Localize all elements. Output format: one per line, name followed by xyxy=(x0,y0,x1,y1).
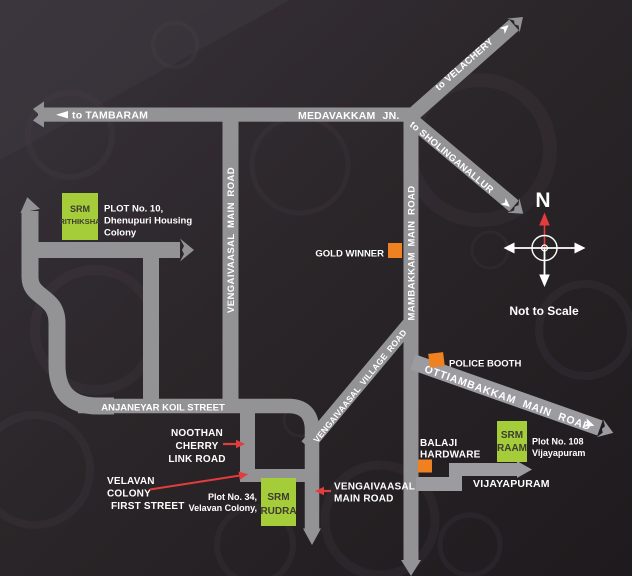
rudra-plot-line2: Velavan Colony, xyxy=(189,503,257,513)
label-anjaneyar-koil: ANJANEYAR KOIL STREET xyxy=(101,403,225,414)
label-vijayapuram: VIJAYAPURAM xyxy=(473,478,550,490)
rithiksha-plot-line3: Colony xyxy=(104,228,137,239)
scale-note: Not to Scale xyxy=(509,304,579,318)
map-canvas: to TAMBARAM MEDAVAKKAM JN. to VELACHERY … xyxy=(0,0,632,576)
velavan-line1: VELAVAN xyxy=(107,476,155,487)
rudra-plot-line1: Plot No. 34, xyxy=(208,492,257,502)
balaji-label-line2: HARDWARE xyxy=(420,450,481,461)
balaji-label-line1: BALAJI xyxy=(420,438,457,449)
police-booth-label: POLICE BOOTH xyxy=(449,359,521,370)
compass-north-label: N xyxy=(535,189,550,212)
raam-plot-line2: Vijayapuram xyxy=(532,448,585,458)
srm-raam-name: RAAM xyxy=(497,443,527,454)
svg-text:VENGAIVAASAL MAIN ROAD: VENGAIVAASAL MAIN ROAD xyxy=(226,167,237,313)
label-mambakkam-main: MAMBAKKAM MAIN ROAD xyxy=(407,185,418,320)
label-medavakkam-jn: MEDAVAKKAM JN. xyxy=(298,110,400,122)
balaji-square-icon xyxy=(418,460,432,473)
label-to-tambaram: to TAMBARAM xyxy=(72,110,148,122)
srm-rithiksha-brand: SRM xyxy=(70,204,90,214)
srm-rudra-brand: SRM xyxy=(267,492,289,503)
srm-rudra-name: RUDRA xyxy=(260,506,296,517)
road-vijayapuram-upper xyxy=(449,463,518,476)
vengaivaasal-south-line1: VENGAIVAASAL xyxy=(334,482,415,493)
vengaivaasal-south-line2: MAIN ROAD xyxy=(334,494,394,505)
location-map: to TAMBARAM MEDAVAKKAM JN. to VELACHERY … xyxy=(0,0,632,576)
velavan-line3: FIRST STREET xyxy=(111,501,185,512)
srm-raam-box xyxy=(497,421,527,462)
gold-winner-label: GOLD WINNER xyxy=(315,249,384,260)
police-booth-square-icon xyxy=(428,352,445,368)
noothan-line1: NOOTHAN xyxy=(171,428,223,439)
label-vengaivaasal-main: VENGAIVAASAL MAIN ROAD xyxy=(226,167,237,313)
srm-rithiksha-name: RITHIKSHA xyxy=(59,217,101,226)
rithiksha-plot-line2: Dhenupuri Housing xyxy=(104,216,192,227)
road-colony-connector xyxy=(143,250,159,410)
noothan-line2: CHERRY xyxy=(175,441,218,452)
road-noothan-cherry-link xyxy=(240,399,255,472)
velavan-line2: COLONY xyxy=(107,489,151,500)
gold-winner-square-icon xyxy=(388,243,402,258)
noothan-line3: LINK ROAD xyxy=(168,454,225,465)
rithiksha-plot-line1: PLOT No. 10, xyxy=(104,204,163,215)
raam-plot-line1: Plot No. 108 xyxy=(532,437,584,447)
svg-text:MAMBAKKAM MAIN ROAD: MAMBAKKAM MAIN ROAD xyxy=(407,185,418,320)
srm-raam-brand: SRM xyxy=(501,430,523,441)
